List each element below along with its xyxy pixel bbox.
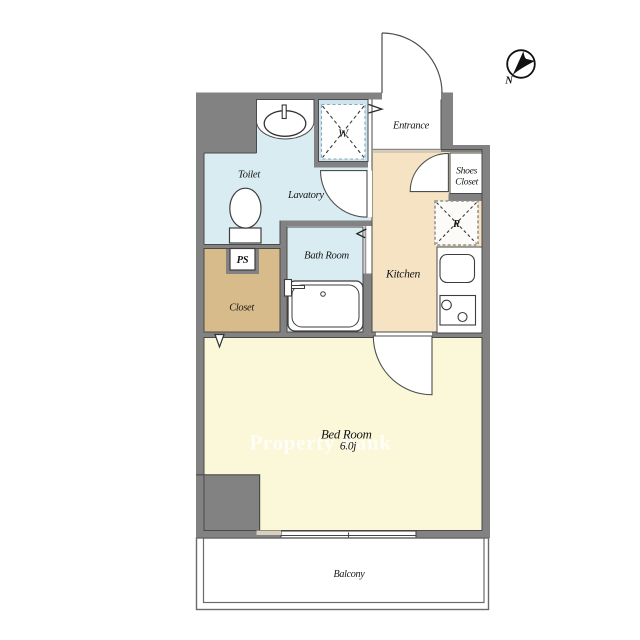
- svg-text:R: R: [452, 219, 460, 230]
- svg-text:6.0j: 6.0j: [340, 441, 356, 453]
- svg-text:Bed Room: Bed Room: [321, 427, 372, 441]
- svg-text:Kitchen: Kitchen: [385, 268, 420, 281]
- svg-text:Shoes: Shoes: [456, 166, 477, 177]
- svg-text:N: N: [504, 76, 513, 87]
- svg-text:Bath Room: Bath Room: [304, 251, 349, 262]
- svg-text:Closet: Closet: [229, 302, 255, 313]
- svg-text:Lavatory: Lavatory: [287, 190, 324, 201]
- svg-text:Balcony: Balcony: [334, 569, 366, 580]
- svg-text:Closet: Closet: [455, 177, 478, 188]
- svg-text:Toilet: Toilet: [238, 170, 261, 181]
- svg-text:Entrance: Entrance: [392, 121, 430, 132]
- svg-text:W: W: [338, 126, 349, 140]
- svg-text:PS: PS: [237, 255, 249, 266]
